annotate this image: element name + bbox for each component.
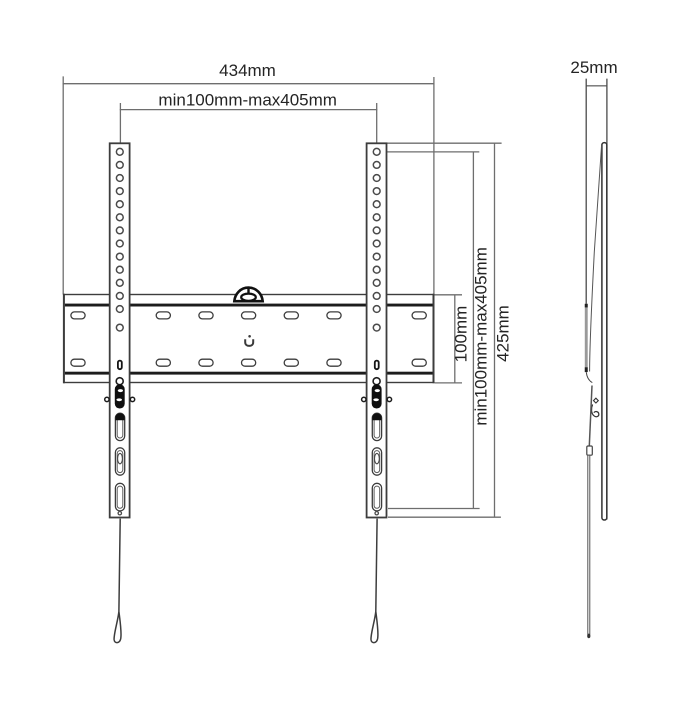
svg-text:min100mm-max405mm: min100mm-max405mm — [158, 91, 337, 110]
svg-text:434mm: 434mm — [219, 61, 276, 80]
svg-text:min100mm-max405mm: min100mm-max405mm — [472, 247, 491, 426]
svg-text:425mm: 425mm — [494, 305, 513, 362]
svg-text:100mm: 100mm — [452, 306, 471, 363]
svg-text:25mm: 25mm — [570, 58, 617, 77]
